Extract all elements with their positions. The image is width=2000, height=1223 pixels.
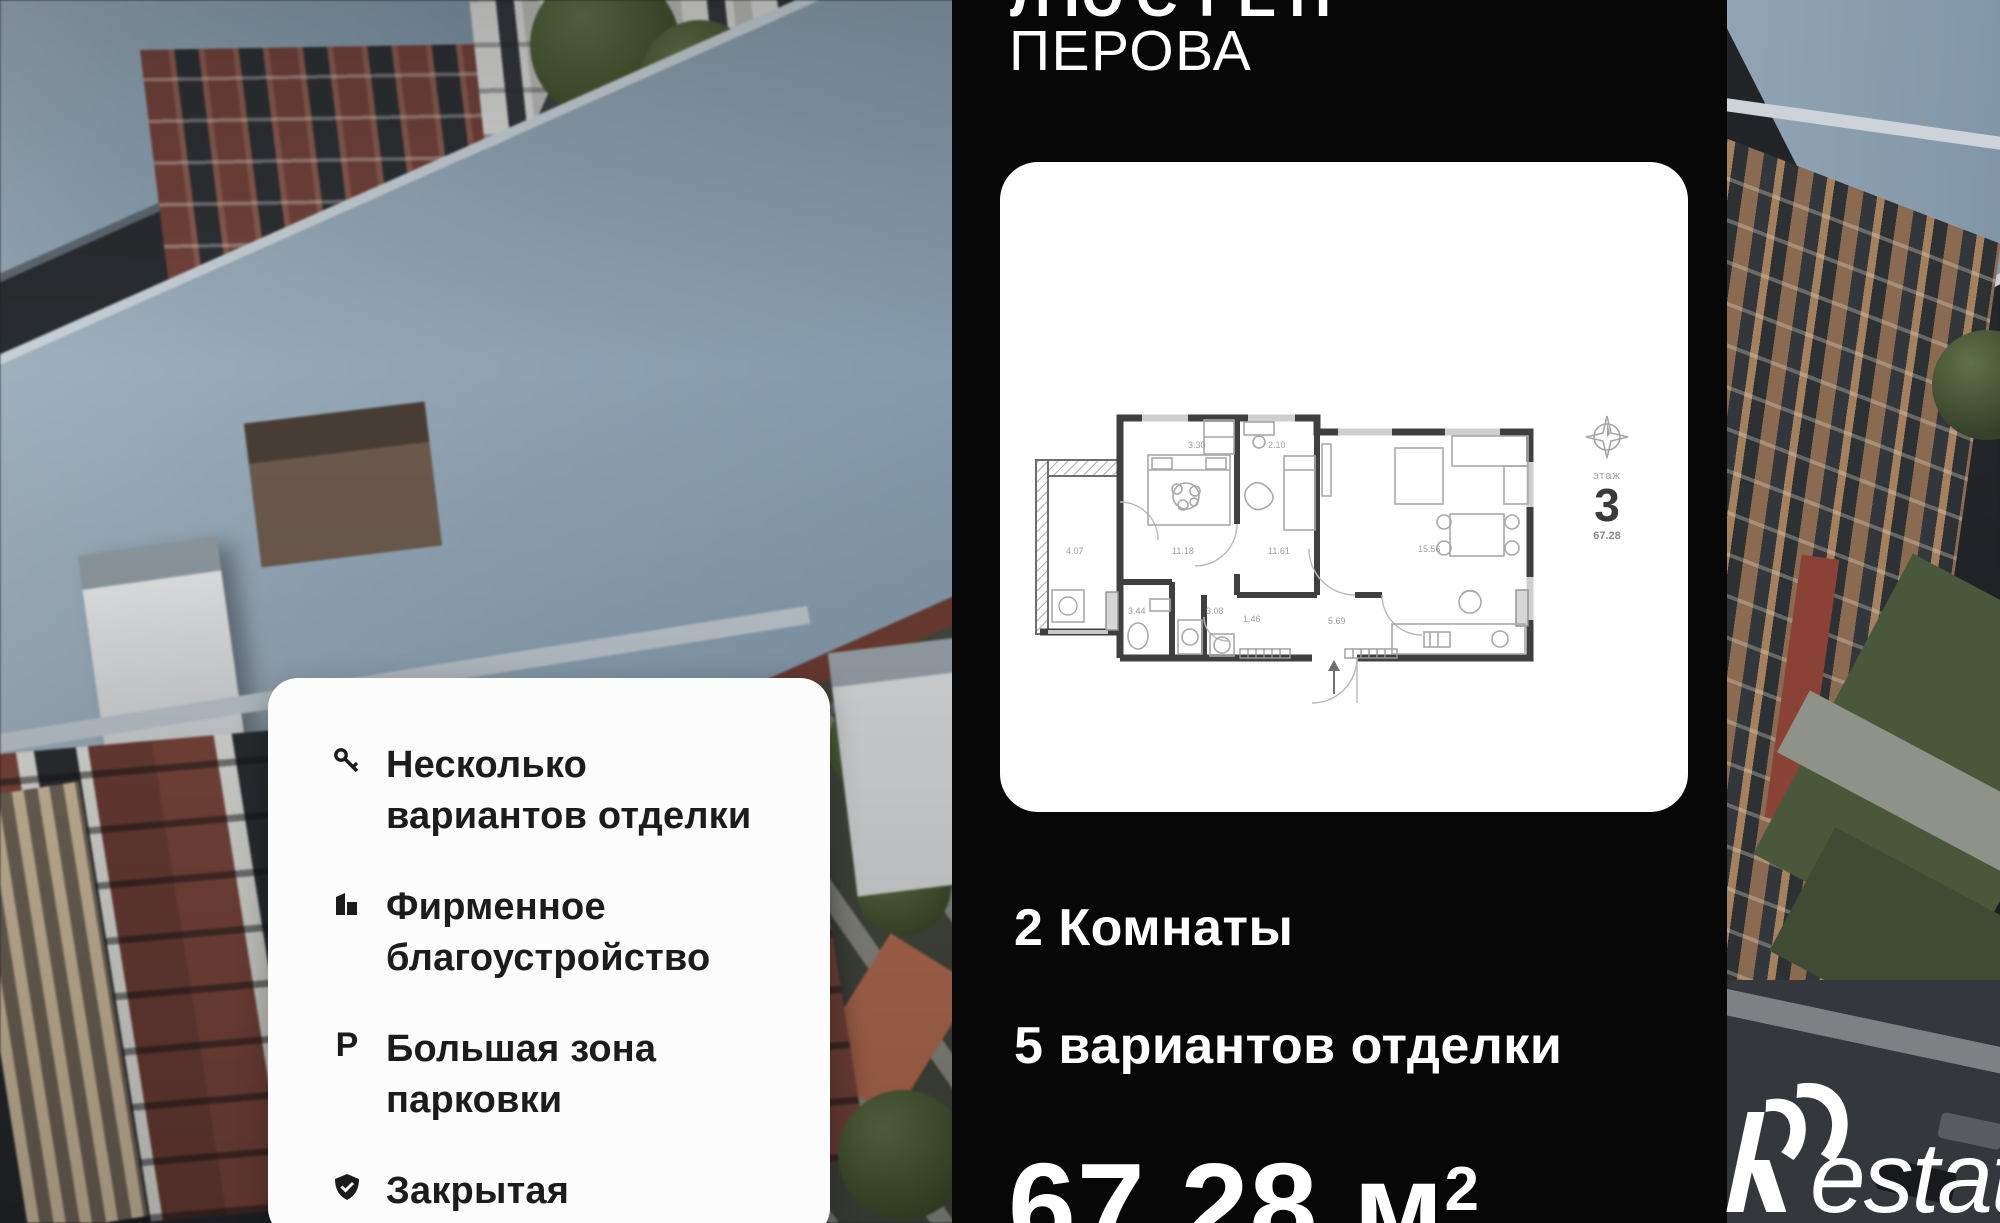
project-title-line2: ПЕРОВА (1009, 18, 1252, 84)
bedroom-furniture (1148, 420, 1234, 525)
outer-walls (1120, 418, 1530, 658)
restate-watermark: estate (1712, 1082, 2000, 1223)
svg-text:5.69: 5.69 (1328, 616, 1346, 626)
feature-text: Фирменное благоустройство (386, 882, 710, 984)
floor-info-block: этаж 3 67.28 (1568, 414, 1646, 542)
parking-icon: P (332, 1030, 362, 1060)
area-superscript: 2 (1444, 1155, 1479, 1223)
feature-item-parking: P Большая зона парковки (332, 1024, 656, 1126)
key-icon (332, 746, 362, 776)
svg-text:11.61: 11.61 (1268, 546, 1290, 556)
svg-text:3.30: 3.30 (1188, 440, 1206, 450)
floorplan-card: 3.30 2.10 11.18 11.61 15.56 4.07 3.44 3.… (1000, 162, 1688, 812)
building-icon (332, 888, 362, 918)
floor-area-small: 67.28 (1568, 530, 1646, 542)
rooms-count: 2 Комнаты (1014, 898, 1293, 958)
feature-text: Закрытая территория (386, 1166, 608, 1223)
feature-item-security: Закрытая территория (332, 1166, 608, 1223)
ad-banner: ЛЮСТЕН ПЕРОВА (0, 0, 2000, 1223)
info-panel: ЛЮСТЕН ПЕРОВА (952, 0, 1727, 1223)
feature-text: Несколько вариантов отделки (386, 740, 751, 842)
svg-text:4.07: 4.07 (1066, 546, 1084, 556)
features-card: Несколько вариантов отделки Фирменное бл… (268, 678, 830, 1223)
finishing-options: 5 вариантов отделки (1014, 1016, 1562, 1076)
door-arcs (1120, 502, 1422, 703)
entrance-arrow-icon (1328, 660, 1340, 694)
total-area: 67.28 м2 (1008, 1136, 1480, 1223)
feature-item-finishing: Несколько вариантов отделки (332, 740, 751, 842)
area-value: 67.28 м (1008, 1138, 1444, 1223)
floor-number: 3 (1568, 482, 1646, 528)
middle-room-furniture (1244, 422, 1315, 530)
restate-logo-icon: estate (1712, 1082, 2000, 1223)
svg-text:11.18: 11.18 (1172, 546, 1194, 556)
shield-check-icon (332, 1172, 362, 1202)
compass-rose-icon (1584, 414, 1630, 460)
svg-text:3.44: 3.44 (1128, 606, 1146, 616)
svg-text:estate: estate (1810, 1122, 2000, 1223)
svg-text:15.56: 15.56 (1418, 544, 1441, 554)
feature-text: Большая зона парковки (386, 1024, 656, 1126)
svg-text:2.10: 2.10 (1268, 440, 1286, 450)
feature-item-landscaping: Фирменное благоустройство (332, 882, 710, 984)
background-photo-right (1727, 0, 2000, 1223)
svg-text:3.08: 3.08 (1206, 606, 1224, 616)
svg-text:1.46: 1.46 (1243, 614, 1261, 624)
